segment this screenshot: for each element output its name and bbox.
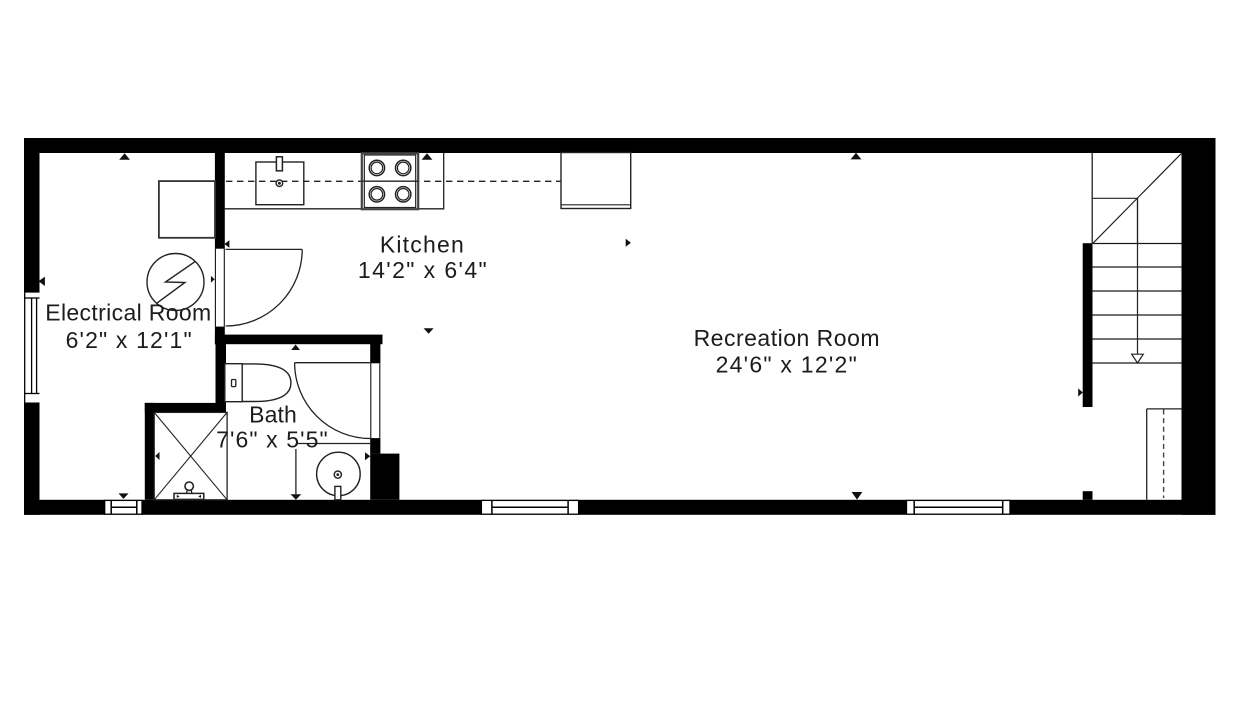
svg-text:Recreation Room: Recreation Room: [694, 325, 880, 351]
svg-text:24'6" x 12'2": 24'6" x 12'2": [716, 351, 858, 377]
svg-text:14'2" x 6'4": 14'2" x 6'4": [358, 257, 488, 283]
svg-text:6'2" x 12'1": 6'2" x 12'1": [66, 327, 193, 353]
svg-text:Bath: Bath: [249, 401, 297, 427]
svg-text:7'6" x 5'5": 7'6" x 5'5": [216, 427, 329, 453]
svg-text:Electrical Room: Electrical Room: [45, 299, 211, 325]
svg-text:Kitchen: Kitchen: [380, 232, 465, 258]
